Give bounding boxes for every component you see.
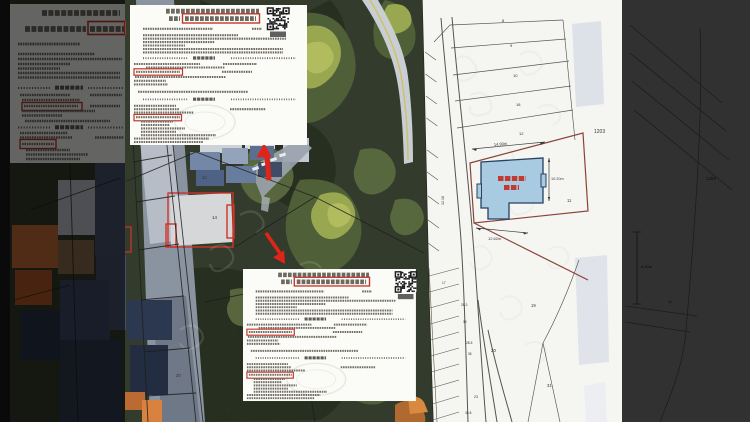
svg-text:14: 14 — [212, 215, 217, 220]
svg-text:17: 17 — [442, 281, 446, 285]
svg-text:23: 23 — [474, 395, 478, 399]
svg-text:1203: 1203 — [594, 129, 605, 135]
svg-text:21: 21 — [226, 407, 231, 412]
svg-text:36-8: 36-8 — [465, 411, 472, 415]
svg-text:20: 20 — [491, 348, 496, 353]
svg-text:31: 31 — [547, 383, 552, 388]
svg-text:19: 19 — [531, 303, 536, 308]
svg-text:12: 12 — [202, 175, 207, 180]
svg-text:10: 10 — [513, 73, 518, 78]
svg-text:12.62m: 12.62m — [488, 236, 502, 241]
svg-text:36: 36 — [468, 352, 472, 356]
svg-text:19: 19 — [230, 331, 235, 336]
svg-text:10.20m: 10.20m — [551, 177, 564, 181]
svg-text:11: 11 — [250, 233, 255, 238]
svg-text:11: 11 — [567, 198, 572, 203]
svg-text:28-5: 28-5 — [466, 341, 473, 345]
svg-text:12.18: 12.18 — [441, 196, 445, 205]
svg-text:36: 36 — [463, 320, 467, 324]
svg-text:18: 18 — [516, 102, 521, 107]
svg-text:28-3: 28-3 — [461, 303, 468, 307]
svg-text:12: 12 — [519, 131, 524, 136]
svg-text:20: 20 — [176, 373, 181, 378]
